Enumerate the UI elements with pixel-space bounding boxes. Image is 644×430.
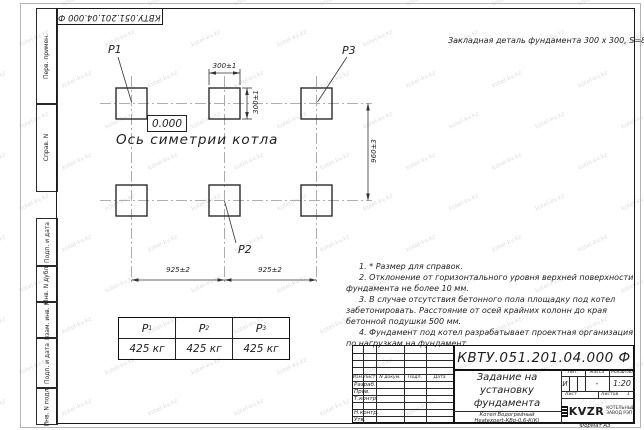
load-table-header-row: P1 P2 P3 bbox=[119, 318, 289, 339]
watermark-text: kotel-kv.kz bbox=[0, 233, 7, 253]
stamp-cell-vzam-inv: Взам. инв. N bbox=[36, 301, 58, 339]
dim-height-side: 300±1 bbox=[252, 82, 260, 122]
note-1: 1. * Размер для справок. bbox=[346, 261, 636, 272]
boiler-axis-label: Ось симетрии котла bbox=[116, 132, 278, 148]
notes-block: 1. * Размер для справок. 2. Отклонение о… bbox=[346, 261, 636, 349]
tb-scale-value: 1:20 bbox=[609, 376, 635, 391]
tb-logo-cell: KVZR КОТЕЛЬНЫЙ ЗАВОД РЭП bbox=[561, 398, 635, 424]
stamp-label: Инв. N дубл. bbox=[44, 264, 51, 303]
tb-title-cell: Задание на установку фундамента bbox=[453, 369, 561, 411]
note-2: 2. Отклонение от горизонтального уровня … bbox=[346, 272, 636, 294]
tb-mass-value: - bbox=[585, 376, 609, 391]
load-value-p2: 425 кг bbox=[176, 339, 233, 359]
product-line2: Heatexpert-КВр-0,6-К(К) bbox=[474, 418, 539, 424]
stamp-label: Инв. N подл. bbox=[44, 386, 51, 426]
tb-row-tkontr: Т.контр. bbox=[354, 396, 378, 402]
p-sub: 3 bbox=[262, 325, 266, 332]
watermark-text: kotel-kv.kz bbox=[0, 315, 7, 335]
tb-lit-header: Лит. bbox=[561, 369, 585, 376]
load-table-header-p3: P3 bbox=[233, 318, 289, 338]
dim-row-spacing: 960±3 bbox=[370, 131, 378, 171]
tb-sheets-value: 1 bbox=[627, 392, 630, 397]
format-label: Формат А3 bbox=[555, 423, 635, 429]
stamp-label: Справ. N bbox=[44, 134, 51, 161]
tb-line bbox=[404, 346, 405, 424]
dim-col-spacing-left: 925±2 bbox=[153, 266, 203, 274]
tb-line bbox=[569, 376, 570, 391]
tb-mass-header: Масса bbox=[585, 369, 609, 376]
stamp-cell-podp-data-2: Подп. и дата bbox=[36, 337, 58, 389]
tb-sheet-label: Лист bbox=[565, 392, 577, 397]
load-table: P1 P2 P3 425 кг 425 кг 425 кг bbox=[118, 317, 290, 360]
tb-line bbox=[426, 346, 427, 424]
stamp-cell-perv-primen: Перв. примен. bbox=[36, 8, 58, 105]
title-block: Изм. Лист N докум. Подп. Дата Разраб. Пр… bbox=[352, 345, 634, 423]
p-base: P bbox=[142, 322, 149, 335]
load-point-label-p1: P1 bbox=[108, 43, 122, 56]
load-value-p1: 425 кг bbox=[119, 339, 176, 359]
load-table-header-p1: P1 bbox=[119, 318, 176, 338]
tb-col-podp: Подп. bbox=[404, 374, 426, 381]
tb-row-prov: Пров. bbox=[354, 389, 370, 395]
kvzr-logo-text: KVZR bbox=[569, 405, 604, 418]
tb-line bbox=[353, 402, 453, 403]
tb-line bbox=[353, 353, 453, 354]
watermark-text: kotel-kv.kz bbox=[0, 69, 7, 89]
stamp-cell-inv-podl: Инв. N подл. bbox=[36, 387, 58, 425]
kvzr-logo-icon bbox=[561, 406, 568, 417]
load-value-p3: 425 кг bbox=[233, 339, 289, 359]
stamp-label: Подп. и дата bbox=[44, 343, 51, 384]
load-table-header-p2: P2 bbox=[176, 318, 233, 338]
p-base: P bbox=[199, 322, 206, 335]
note-3: 3. В случае отсутствия бетонного пола пл… bbox=[346, 294, 636, 327]
drawing-sheet: kotel-kv.kzkotel-kv.kzkotel-kv.kzkotel-k… bbox=[0, 0, 644, 430]
embed-plate-note: Закладная деталь фундамента 300 x 300, S… bbox=[448, 36, 644, 45]
tb-line bbox=[598, 391, 599, 398]
elevation-mark: 0.000 bbox=[147, 115, 187, 132]
tb-row-razrab: Разраб. bbox=[354, 382, 376, 388]
dim-col-spacing-right: 925±2 bbox=[245, 266, 295, 274]
stamp-label: Взам. инв. N bbox=[44, 301, 51, 340]
tb-line bbox=[353, 360, 453, 361]
stamp-cell-podp-data-1: Подп. и дата bbox=[36, 218, 58, 267]
stamp-label: Перв. примен. bbox=[44, 34, 51, 79]
tb-row-utv: Утв. bbox=[354, 417, 366, 423]
stamp-label: Подп. и дата bbox=[44, 222, 51, 263]
tb-col-ndoc: N докум. bbox=[376, 374, 404, 381]
tb-product-cell: Котел Водогрейный Heatexpert-КВр-0,6-К(К… bbox=[453, 411, 561, 424]
tb-sheets-label: Листов bbox=[601, 392, 618, 397]
tb-col-data: Дата bbox=[426, 374, 453, 381]
watermark-text: kotel-kv.kz bbox=[0, 0, 7, 8]
dim-width-top: 300±1 bbox=[199, 62, 250, 70]
rotated-designation-text: КВТУ.051.201.04.000 Ф bbox=[58, 12, 161, 22]
company-line2: ЗАВОД РЭП bbox=[606, 411, 635, 416]
watermark-text: kotel-kv.kz bbox=[0, 397, 7, 417]
tb-row-nkontr: Н.контр. bbox=[354, 410, 379, 416]
load-table-value-row: 425 кг 425 кг 425 кг bbox=[119, 339, 289, 359]
tb-lit-value: И bbox=[561, 376, 569, 391]
p-sub: 2 bbox=[205, 325, 209, 332]
watermark-text: kotel-kv.kz bbox=[0, 151, 7, 171]
tb-line bbox=[353, 367, 453, 368]
load-point-label-p2: P2 bbox=[238, 243, 252, 256]
tb-line bbox=[577, 376, 578, 391]
tb-col-list: Лист bbox=[363, 374, 376, 381]
stamp-cell-sprav-n: Справ. N bbox=[36, 103, 58, 192]
document-title: Задание на установку фундамента bbox=[472, 371, 542, 410]
p-base: P bbox=[256, 322, 263, 335]
tb-scale-header: Масштаб bbox=[609, 369, 635, 376]
load-point-label-p3: P3 bbox=[342, 44, 356, 57]
tb-line bbox=[353, 416, 453, 417]
p-sub: 1 bbox=[148, 325, 152, 332]
stamp-cell-inv-dubl: Инв. N дубл. bbox=[36, 265, 58, 303]
rotated-designation-stamp: КВТУ.051.201.04.000 Ф bbox=[56, 8, 163, 25]
tb-col-izm: Изм. bbox=[353, 374, 363, 381]
tb-designation: КВТУ.051.201.04.000 Ф bbox=[453, 346, 635, 369]
